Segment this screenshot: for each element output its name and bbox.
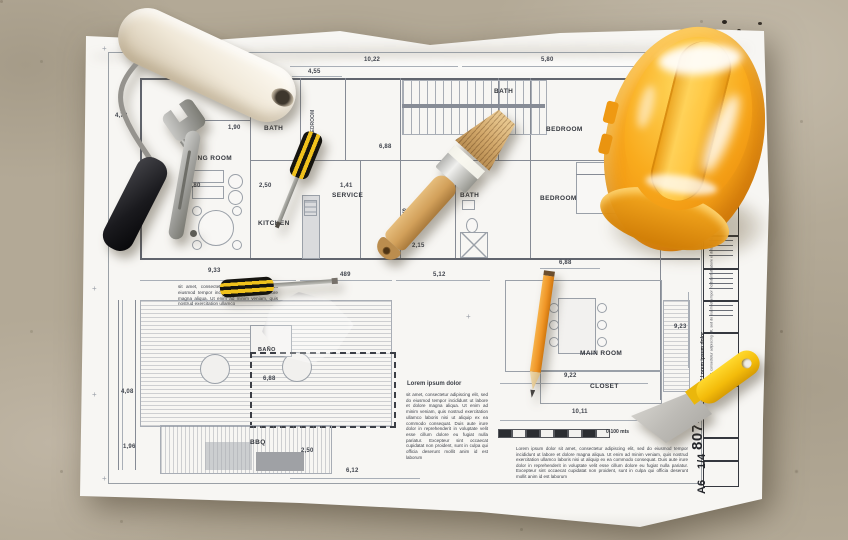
chair: [549, 303, 559, 313]
shower: [460, 232, 488, 258]
chair: [232, 206, 242, 216]
dim-688a: 6,88: [379, 144, 391, 150]
screwdriver-handle: [219, 276, 274, 298]
dimension-line: [688, 292, 689, 368]
screwdriver-shaft: [274, 279, 332, 287]
chair: [232, 240, 242, 250]
dimension-line: [292, 76, 342, 77]
dining-table-round: [198, 210, 234, 246]
dim-933: 9,33: [208, 268, 220, 274]
wrench-hang-hole: [190, 230, 197, 237]
dim-612: 6,12: [346, 468, 358, 474]
deck-right: [663, 300, 690, 392]
note-left-body: sit amet, consectetur adipiscing elit, s…: [406, 392, 488, 460]
room-label-bbq: BBQ: [250, 439, 266, 446]
stove: [304, 200, 317, 216]
titleblock-cell-size: [703, 460, 739, 487]
sink: [462, 200, 475, 210]
dimension-line: [462, 66, 638, 67]
note-left-heading: Lorem ipsum dolor: [407, 381, 489, 387]
wall: [360, 160, 361, 258]
scale-bar-label: 0-100 mts: [606, 429, 629, 435]
dimension-line: [540, 268, 600, 269]
dim-923: 9,23: [674, 324, 686, 330]
dim-1011: 10,11: [572, 409, 588, 415]
dimension-line: [500, 383, 648, 384]
room-label-closet: CLOSET: [590, 383, 619, 390]
putty-knife-hole: [740, 356, 754, 370]
toilet: [466, 218, 478, 233]
room-label-bath-1: BATH: [264, 125, 283, 132]
dashed-extension-outline: [250, 352, 396, 428]
dimension-line: [290, 478, 420, 479]
chair: [549, 320, 559, 330]
dim-408: 4,08: [121, 389, 133, 395]
dim-512: 5,12: [433, 272, 445, 278]
room-label-bath-2: BATH: [494, 88, 513, 95]
side-table: [228, 174, 243, 189]
bbq-grill: [256, 452, 304, 471]
registration-cross: +: [466, 312, 471, 321]
brush-hang-hole: [381, 245, 392, 256]
chair: [192, 240, 202, 250]
registration-cross: +: [102, 474, 107, 483]
dimension-line: [396, 280, 490, 281]
titleblock-cell-lines3: [703, 300, 739, 334]
wall: [140, 258, 700, 260]
chair: [597, 337, 607, 347]
dim-455: 4,55: [308, 69, 320, 75]
registration-cross: +: [92, 284, 97, 293]
room-label-bano: BAÑO: [258, 347, 276, 353]
titleblock-scale: 1/4: [696, 454, 708, 469]
photo-scene: + + + + + + LIVING ROOM BATH KITCHEN BED…: [0, 0, 848, 540]
registration-cross: +: [92, 390, 97, 399]
side-table: [228, 190, 243, 205]
chair: [192, 206, 202, 216]
dim-688b: 6,88: [559, 260, 571, 266]
screwdriver-tip: [332, 278, 338, 284]
dim-141: 1,41: [340, 183, 352, 189]
staircase-rail: [402, 104, 545, 108]
dim-1022: 10,22: [364, 57, 380, 63]
note-bottom-body: Lorem ipsum dolor sit amet, consectetur …: [516, 446, 688, 480]
dim-580: 5,80: [541, 57, 553, 63]
chair: [597, 320, 607, 330]
dimension-line: [290, 66, 458, 67]
dining-table: [558, 298, 596, 354]
dim-688c: 6,88: [263, 376, 275, 382]
sofa: [192, 170, 224, 183]
room-label-bedroom-1: BEDROOM: [546, 126, 583, 133]
dim-489: 489: [340, 272, 351, 278]
chair: [597, 303, 607, 313]
room-label-main-room: MAIN ROOM: [580, 350, 622, 357]
dim-196: 1,96: [123, 444, 135, 450]
wall: [345, 78, 346, 160]
scale-bar: [498, 429, 610, 438]
dim-922: 9,22: [564, 373, 576, 379]
room-label-bedroom-2: BEDROOM: [540, 195, 577, 202]
dim-250a: 2,50: [259, 183, 271, 189]
room-label-service: SERVICE: [332, 192, 363, 199]
bbq-counter: [205, 442, 252, 470]
titleblock-cell-scale: [703, 437, 739, 462]
screwdriver-tip: [275, 221, 281, 228]
wall: [118, 300, 119, 470]
titleblock-size: A6: [696, 480, 708, 494]
dim-190: 1,90: [228, 125, 240, 131]
dim-250b: 2,50: [301, 448, 313, 454]
patio-table: [200, 354, 230, 384]
chair: [549, 337, 559, 347]
